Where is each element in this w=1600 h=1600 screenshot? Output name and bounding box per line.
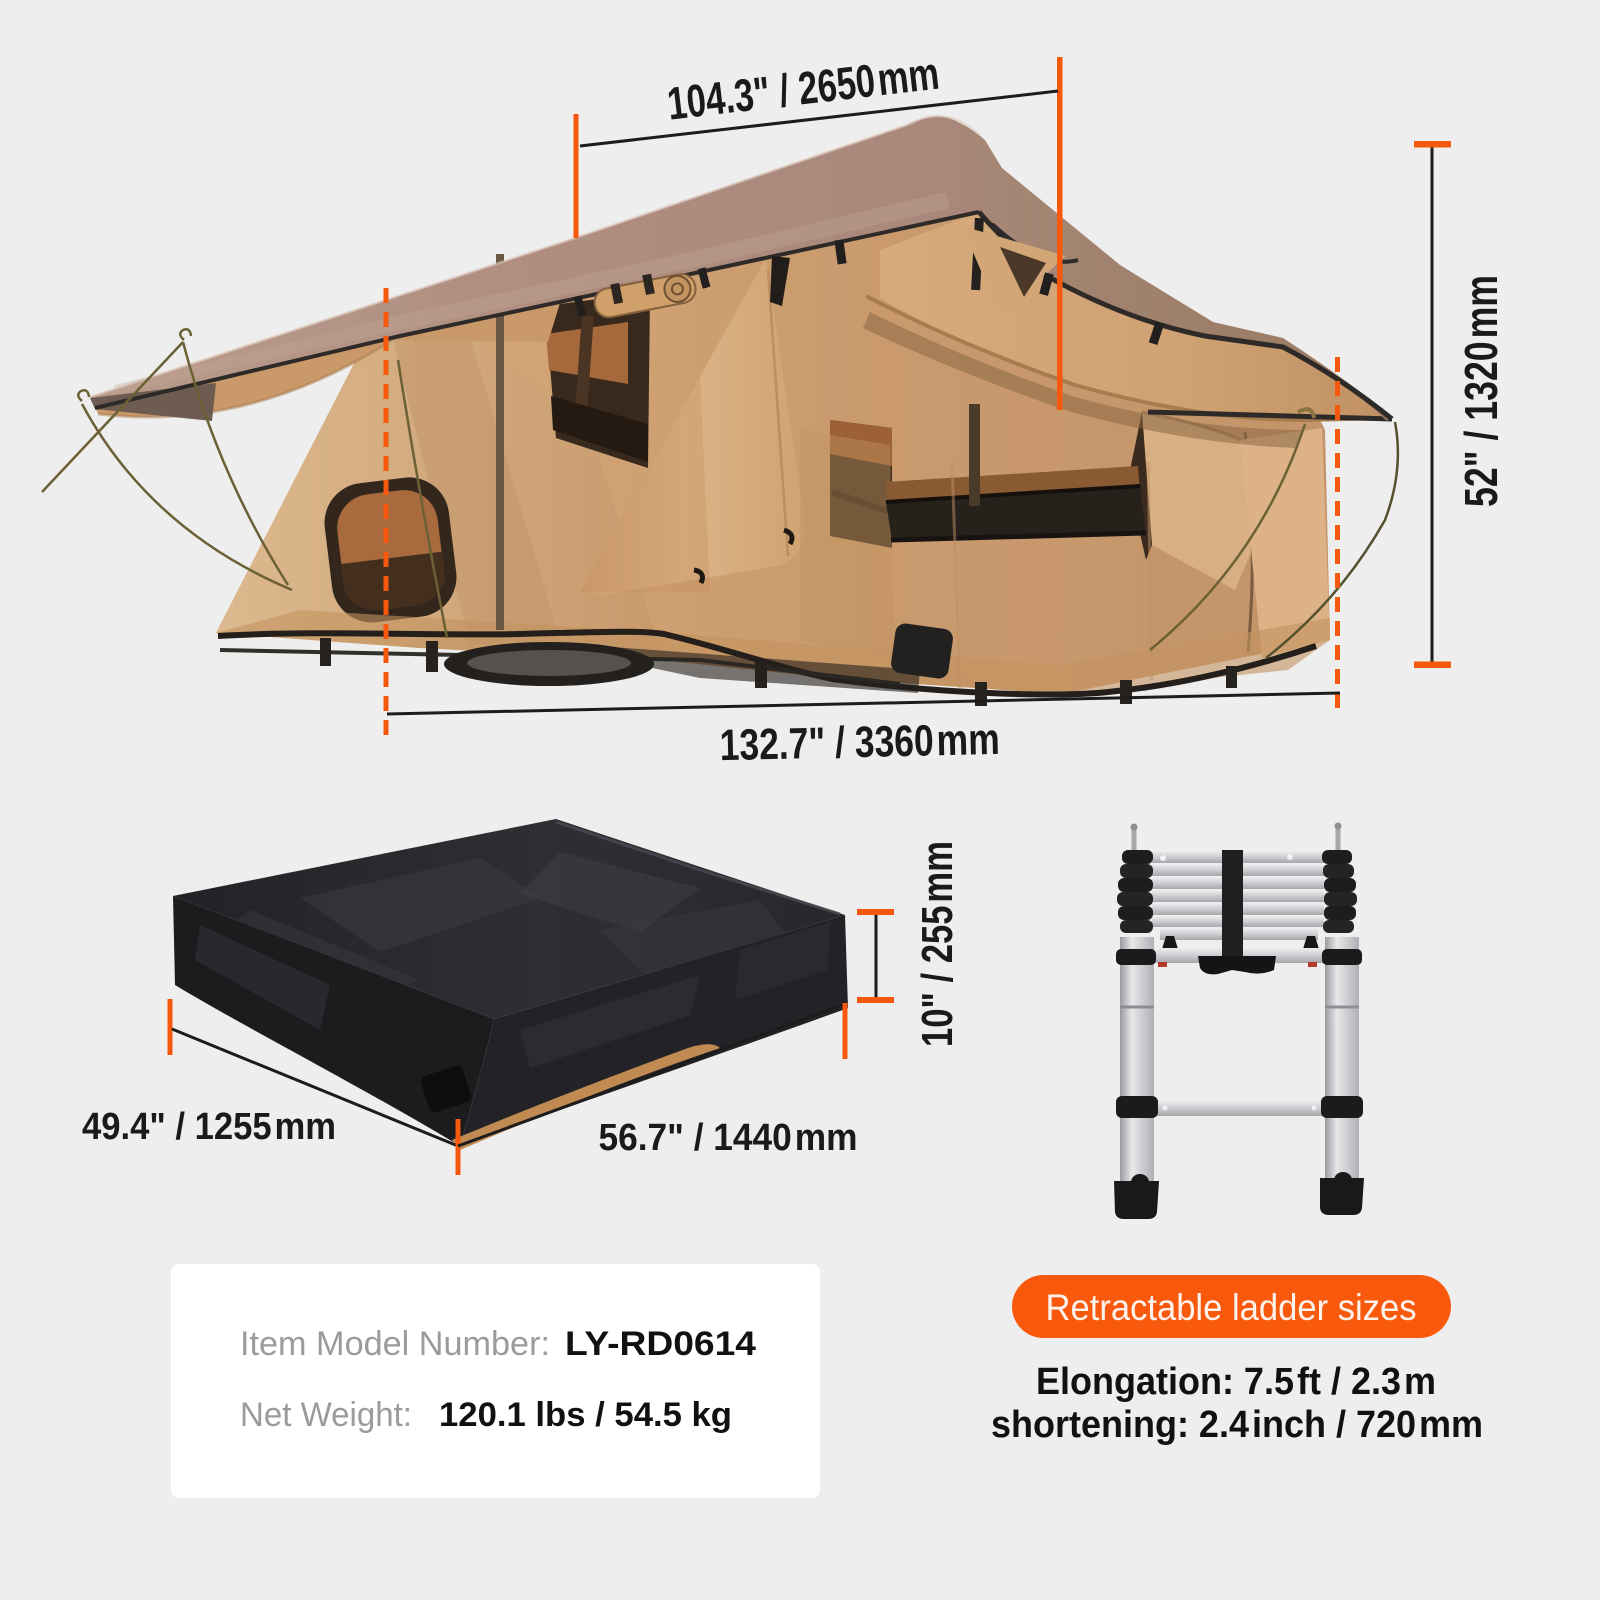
svg-text:Elongation: 7.5 ft / 2.3 m: Elongation: 7.5 ft / 2.3 m bbox=[1036, 1361, 1436, 1403]
svg-text:56.7" / 1440 mm: 56.7" / 1440 mm bbox=[599, 1117, 858, 1159]
svg-text:120.1 lbs / 54.5 kg: 120.1 lbs / 54.5 kg bbox=[439, 1396, 732, 1434]
svg-text:Item Model Number:: Item Model Number: bbox=[240, 1325, 550, 1363]
svg-text:52" / 1320 mm: 52" / 1320 mm bbox=[1455, 275, 1507, 507]
svg-text:10" / 255 mm: 10" / 255 mm bbox=[913, 841, 962, 1047]
svg-text:Retractable ladder sizes: Retractable ladder sizes bbox=[1046, 1287, 1417, 1328]
svg-text:LY-RD0614: LY-RD0614 bbox=[565, 1325, 756, 1363]
svg-text:49.4" / 1255 mm: 49.4" / 1255 mm bbox=[82, 1106, 336, 1148]
svg-text:shortening: 2.4 inch / 720 mm: shortening: 2.4 inch / 720 mm bbox=[991, 1404, 1483, 1446]
svg-text:Net Weight:: Net Weight: bbox=[240, 1396, 412, 1434]
svg-text:132.7" / 3360 mm: 132.7" / 3360 mm bbox=[719, 715, 1000, 770]
